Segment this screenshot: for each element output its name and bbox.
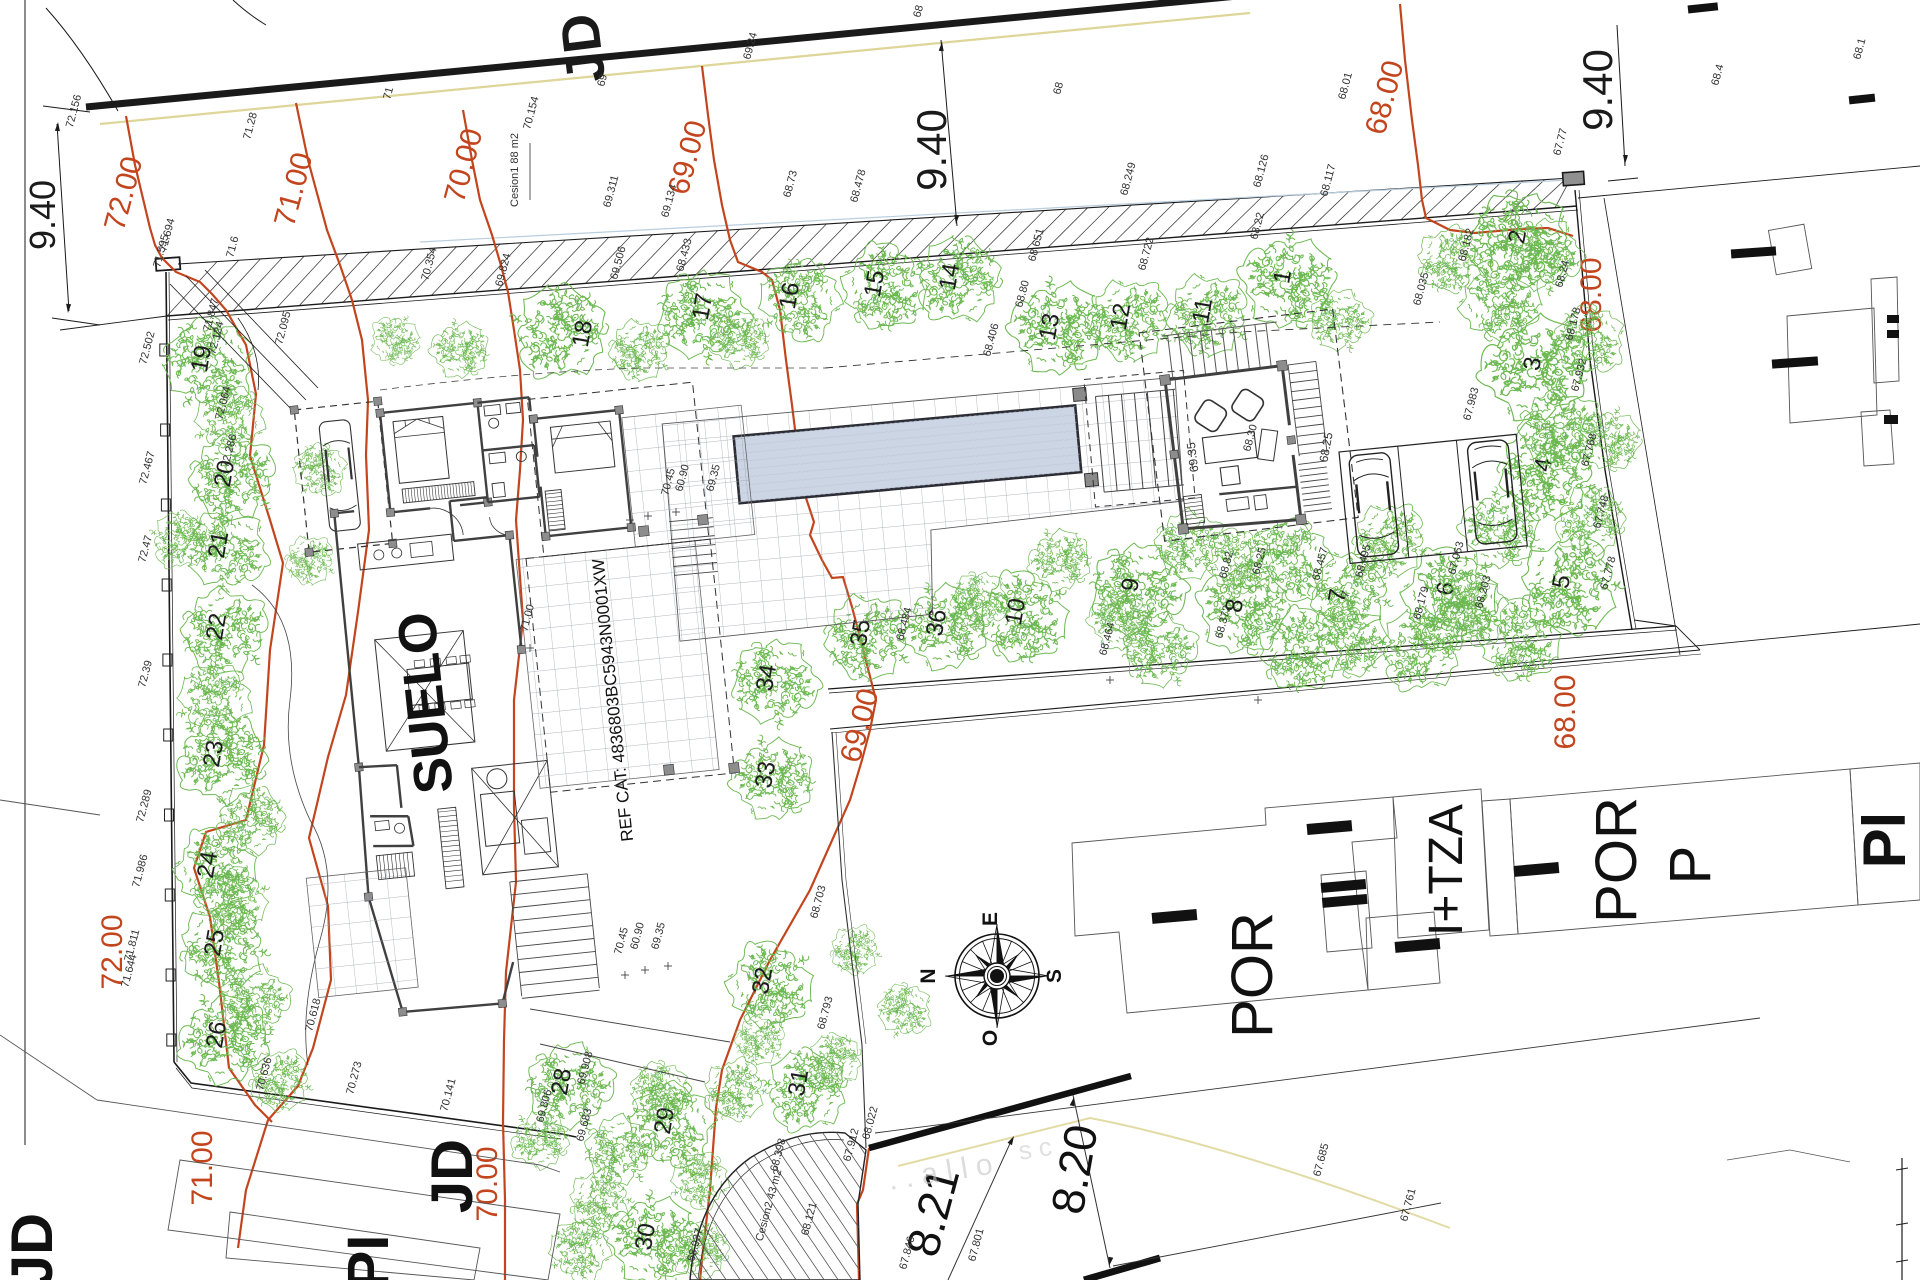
- svg-text:s c: s c: [1016, 1131, 1054, 1166]
- svg-text:Pl: Pl: [1851, 812, 1918, 869]
- svg-text:10: 10: [1000, 596, 1031, 627]
- svg-text:Cesion1 88 m2: Cesion1 88 m2: [509, 133, 521, 207]
- svg-text:32: 32: [747, 965, 778, 996]
- svg-text:9.40: 9.40: [908, 109, 955, 191]
- svg-text:33: 33: [750, 759, 781, 790]
- svg-text:13: 13: [1034, 311, 1065, 342]
- svg-text:22: 22: [201, 611, 232, 642]
- svg-text:JD: JD: [0, 1213, 65, 1280]
- svg-text:11: 11: [1187, 296, 1218, 325]
- svg-text:31: 31: [783, 1067, 814, 1098]
- svg-text:E: E: [979, 912, 1002, 926]
- svg-text:P: P: [1658, 846, 1723, 885]
- svg-text:N: N: [917, 968, 940, 983]
- svg-text:JD: JD: [549, 10, 617, 86]
- svg-text:12: 12: [1105, 301, 1136, 332]
- svg-text:30: 30: [630, 1221, 661, 1252]
- svg-text:68.00: 68.00: [1549, 674, 1582, 749]
- svg-text:JD: JD: [420, 1139, 485, 1213]
- svg-text:24: 24: [192, 849, 223, 880]
- svg-text:PI: PI: [336, 1235, 401, 1280]
- svg-text:POR: POR: [1220, 912, 1285, 1038]
- svg-text:21: 21: [203, 529, 234, 560]
- svg-text:POR: POR: [1584, 797, 1649, 923]
- svg-text:17: 17: [687, 291, 718, 322]
- svg-text:15: 15: [859, 268, 890, 299]
- svg-text:25: 25: [199, 927, 230, 958]
- svg-text:14: 14: [934, 261, 965, 292]
- svg-text:16: 16: [774, 280, 805, 311]
- svg-text:9.40: 9.40: [1574, 49, 1621, 131]
- svg-text:O: O: [979, 1030, 1002, 1046]
- svg-text:18: 18: [567, 318, 598, 349]
- svg-text:S: S: [1043, 969, 1066, 983]
- svg-text:71.00: 71.00: [186, 1130, 219, 1205]
- svg-text:23: 23: [198, 738, 229, 769]
- svg-text:34: 34: [751, 662, 782, 693]
- svg-text:I+TZA: I+TZA: [1420, 804, 1473, 936]
- svg-text:9.40: 9.40: [22, 180, 63, 250]
